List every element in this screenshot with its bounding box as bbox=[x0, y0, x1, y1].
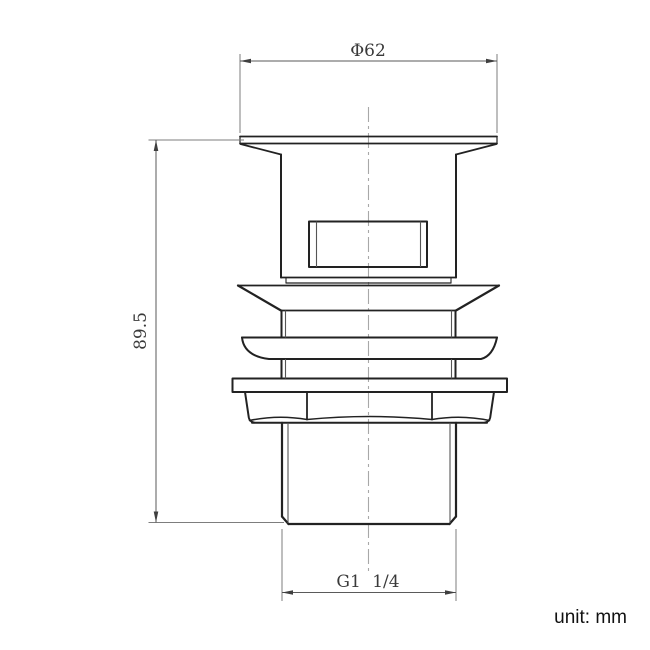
dimension-labels: Φ62 89.5 G1 1/4 bbox=[131, 41, 400, 592]
unit-label: unit: mm bbox=[554, 607, 627, 628]
thread-arrow-left bbox=[282, 590, 293, 595]
diameter-arrow-left bbox=[240, 59, 251, 64]
gasket-boat-curve bbox=[242, 338, 497, 360]
washer-plate bbox=[233, 379, 508, 393]
technical-drawing: Φ62 89.5 G1 1/4 unit: mm bbox=[0, 0, 650, 650]
washer-plate-rect bbox=[233, 379, 508, 393]
dimension-lines bbox=[156, 61, 497, 593]
diameter-arrow-right bbox=[486, 59, 497, 64]
part-outline bbox=[233, 137, 508, 525]
hex-nut bbox=[245, 392, 494, 423]
cone-left-slope bbox=[238, 286, 281, 311]
height-arrow-top bbox=[154, 140, 159, 151]
cap-diameter-label: Φ62 bbox=[350, 41, 386, 61]
overall-height-label: 89.5 bbox=[131, 312, 151, 350]
nut-left-edge bbox=[245, 392, 254, 423]
nut-right-edge bbox=[485, 392, 494, 423]
dimension-arrows bbox=[154, 59, 497, 595]
cap-right-skirt bbox=[456, 144, 497, 155]
nut-chamfer-arc-right bbox=[432, 417, 490, 420]
drawing-canvas: Φ62 89.5 G1 1/4 unit: mm bbox=[0, 0, 650, 650]
thread-arrow-right bbox=[445, 590, 456, 595]
cone-right-slope bbox=[456, 286, 499, 311]
nut-chamfer-arc-center bbox=[307, 417, 432, 420]
height-arrow-bottom bbox=[154, 512, 159, 523]
cap-left-skirt bbox=[241, 144, 282, 155]
seal-gasket bbox=[242, 338, 497, 360]
nut-chamfer-arc-left bbox=[250, 417, 308, 420]
thread-size-label: G1 1/4 bbox=[336, 572, 399, 592]
